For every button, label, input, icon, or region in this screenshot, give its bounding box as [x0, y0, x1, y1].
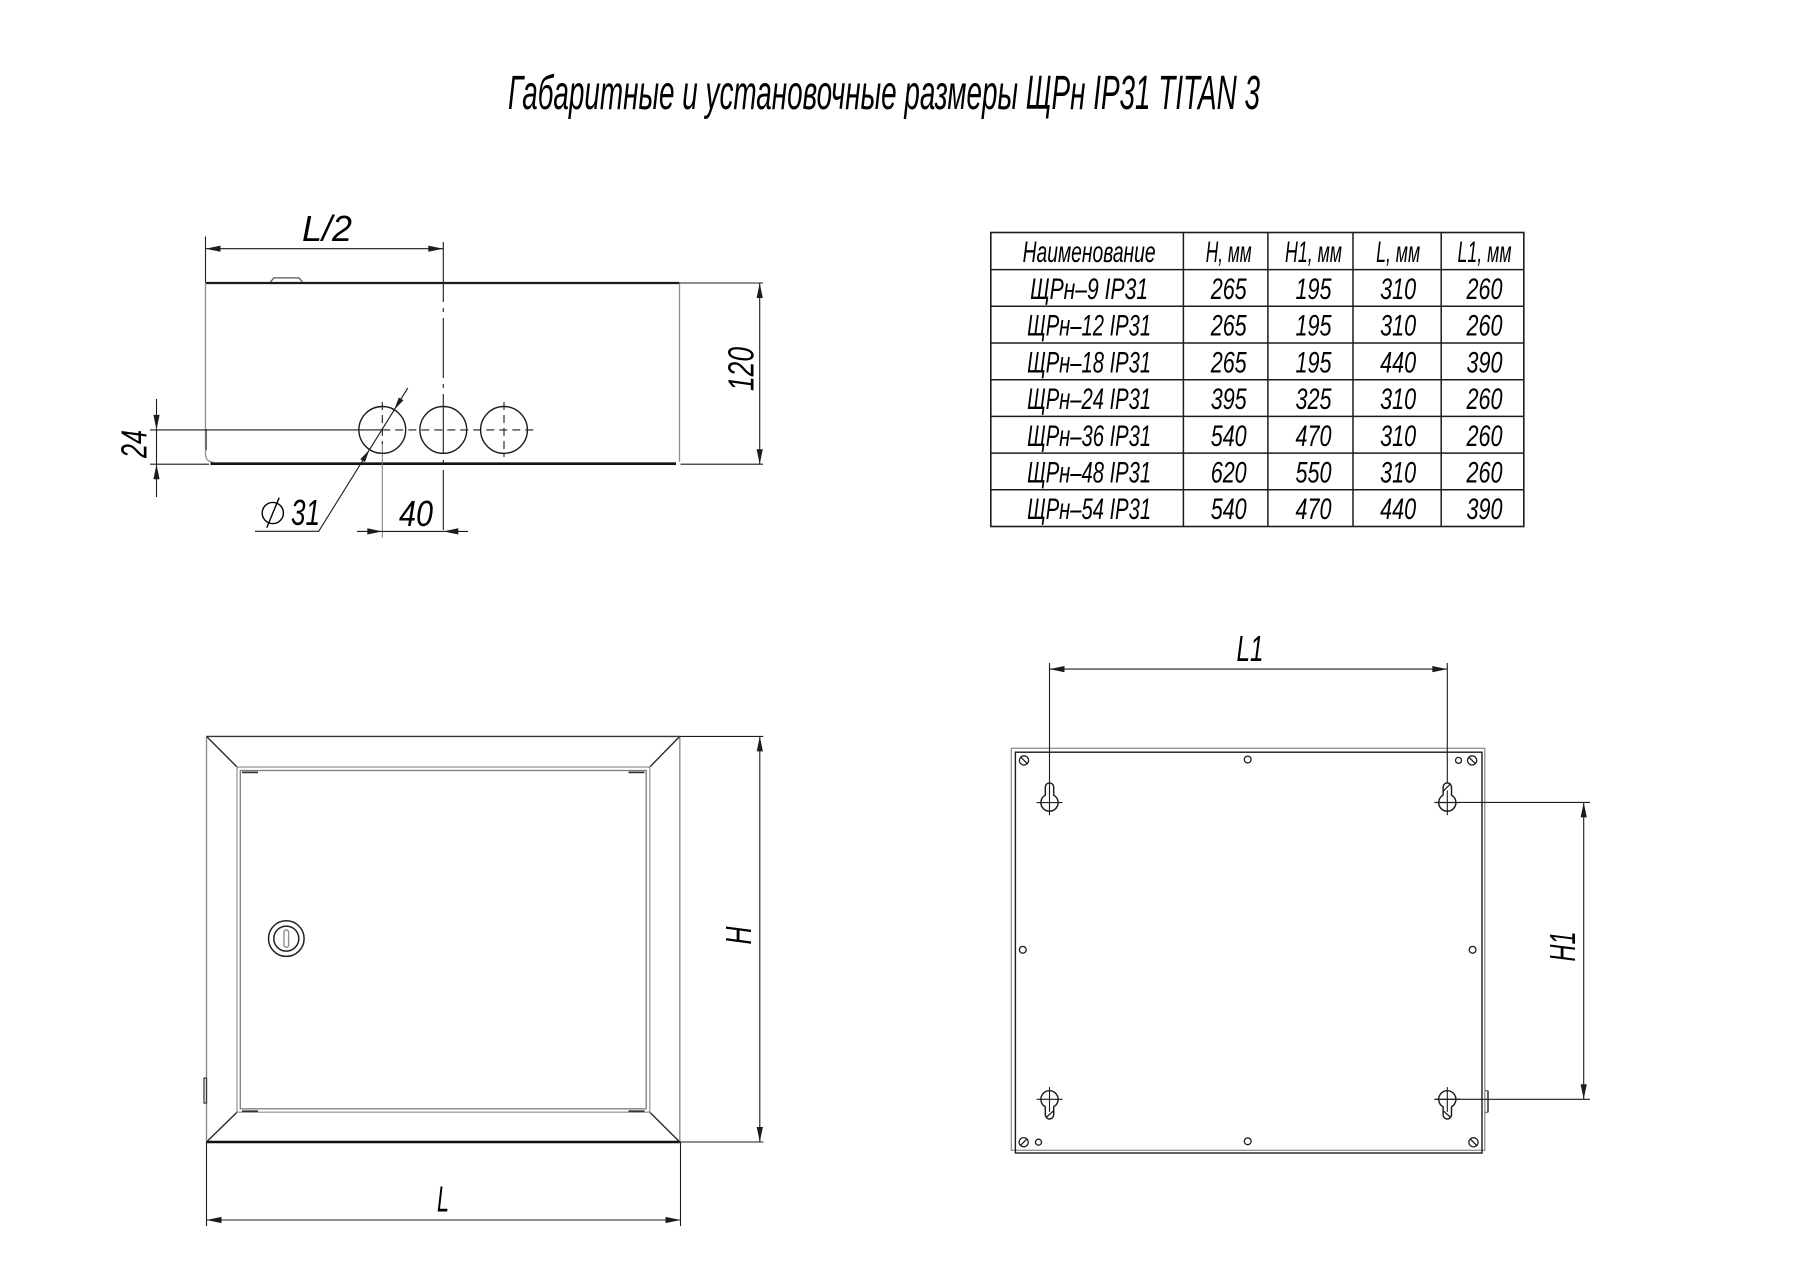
svg-text:395: 395	[1211, 383, 1247, 416]
svg-text:H: H	[718, 926, 759, 945]
svg-text:260: 260	[1466, 310, 1503, 343]
svg-text:265: 265	[1210, 346, 1247, 379]
svg-text:H1, мм: H1, мм	[1285, 236, 1342, 269]
svg-text:325: 325	[1296, 383, 1332, 416]
svg-text:195: 195	[1296, 273, 1332, 306]
svg-text:ЩРн–48 IP31: ЩРн–48 IP31	[1027, 457, 1151, 490]
svg-text:L1, мм: L1, мм	[1458, 236, 1512, 269]
svg-text:ЩРн–9 IP31: ЩРн–9 IP31	[1030, 273, 1148, 306]
svg-text:310: 310	[1380, 273, 1416, 306]
svg-text:260: 260	[1466, 457, 1503, 490]
svg-text:ЩРн–18 IP31: ЩРн–18 IP31	[1027, 346, 1151, 379]
svg-text:265: 265	[1210, 310, 1247, 343]
svg-text:L: L	[437, 1179, 449, 1220]
svg-text:440: 440	[1380, 493, 1416, 526]
svg-text:195: 195	[1296, 310, 1332, 343]
svg-text:265: 265	[1210, 273, 1247, 306]
svg-text:540: 540	[1211, 420, 1247, 453]
svg-text:470: 470	[1296, 420, 1332, 453]
svg-text:120: 120	[721, 347, 762, 391]
svg-text:620: 620	[1211, 457, 1247, 490]
svg-text:310: 310	[1380, 457, 1416, 490]
svg-text:L/2: L/2	[302, 208, 352, 249]
svg-text:31: 31	[291, 492, 320, 533]
svg-text:540: 540	[1211, 493, 1247, 526]
svg-text:L1: L1	[1237, 628, 1264, 669]
svg-text:195: 195	[1296, 346, 1332, 379]
svg-text:ЩРн–36 IP31: ЩРн–36 IP31	[1027, 420, 1151, 453]
svg-text:550: 550	[1296, 457, 1332, 490]
svg-text:ЩРн–12 IP31: ЩРн–12 IP31	[1027, 310, 1151, 343]
svg-text:440: 440	[1380, 346, 1416, 379]
svg-text:H1: H1	[1542, 932, 1583, 962]
svg-text:310: 310	[1380, 420, 1416, 453]
svg-text:390: 390	[1467, 346, 1503, 379]
svg-text:24: 24	[114, 430, 155, 459]
svg-text:Габаритные и установочные разм: Габаритные и установочные размеры ЩРн IP…	[508, 67, 1260, 120]
svg-text:260: 260	[1466, 273, 1503, 306]
svg-text:310: 310	[1380, 310, 1416, 343]
svg-text:390: 390	[1467, 493, 1503, 526]
svg-text:H, мм: H, мм	[1206, 236, 1252, 269]
svg-text:260: 260	[1466, 420, 1503, 453]
svg-text:ЩРн–54 IP31: ЩРн–54 IP31	[1027, 493, 1151, 526]
svg-text:Наименование: Наименование	[1023, 236, 1156, 269]
svg-text:L, мм: L, мм	[1376, 236, 1420, 269]
svg-text:ЩРн–24 IP31: ЩРн–24 IP31	[1027, 383, 1151, 416]
svg-text:310: 310	[1380, 383, 1416, 416]
svg-text:470: 470	[1296, 493, 1332, 526]
svg-text:260: 260	[1466, 383, 1503, 416]
svg-text:40: 40	[399, 493, 433, 534]
